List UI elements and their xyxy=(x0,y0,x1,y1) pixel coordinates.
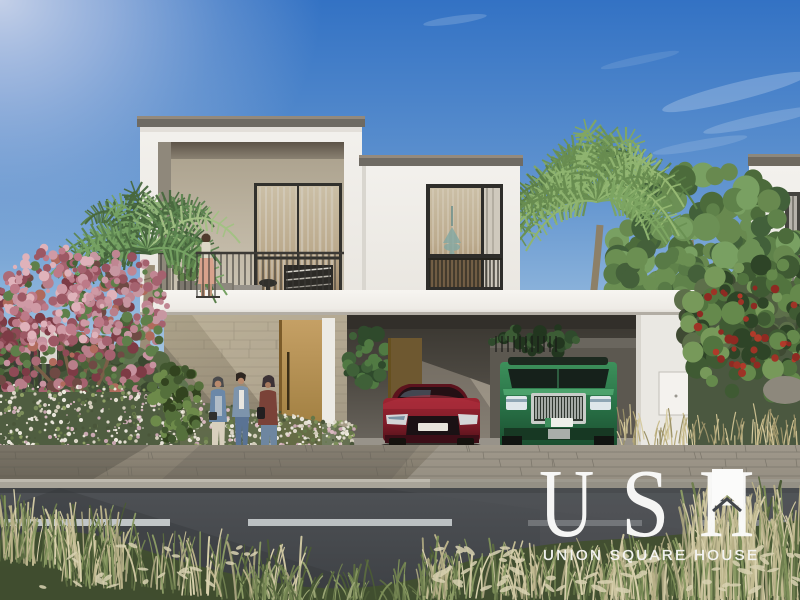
svg-text:H: H xyxy=(699,449,754,557)
svg-text:S: S xyxy=(621,450,670,557)
svg-text:U: U xyxy=(539,449,594,557)
svg-text:UNION SQUARE HOUSE: UNION SQUARE HOUSE xyxy=(543,547,761,564)
